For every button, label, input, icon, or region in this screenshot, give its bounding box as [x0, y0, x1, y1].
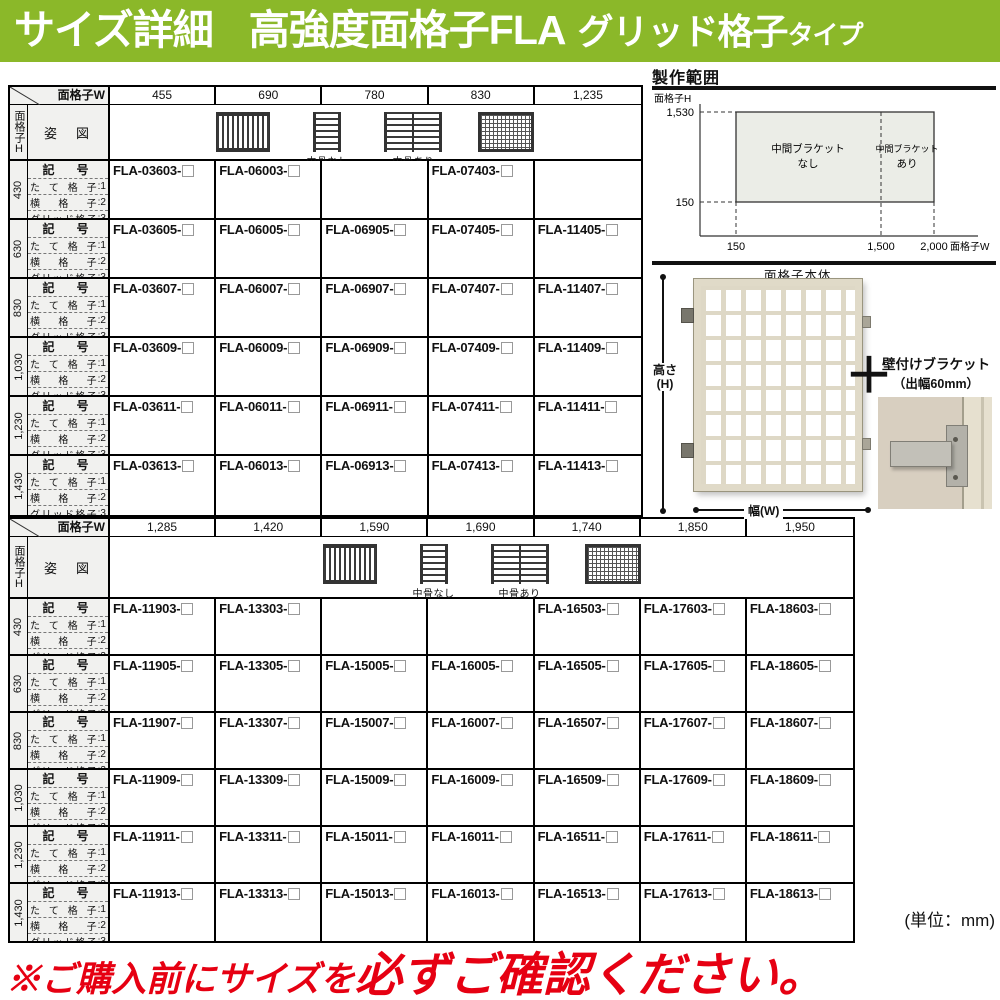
product-code: FLA-03613- — [113, 458, 181, 473]
legend-number: :3 — [98, 213, 106, 220]
row-height-cell: 830 — [10, 713, 28, 770]
fig-grid-lattice — [478, 112, 534, 152]
legend-row: 横格子:2 — [28, 917, 108, 933]
code-cell: FLA-11903- — [110, 599, 216, 656]
legend-number: :3 — [98, 449, 106, 456]
code-cell — [322, 161, 428, 220]
color-checkbox — [182, 165, 194, 177]
product-code: FLA-15009- — [325, 772, 393, 787]
legend-name: グリッド格子 — [30, 763, 97, 770]
legend-number: :1 — [98, 358, 106, 369]
code-cell: FLA-13305- — [216, 656, 322, 713]
code-cell: FLA-16503- — [535, 599, 641, 656]
banner-grid-type: グリッド格子 — [577, 11, 787, 52]
legend-number: :2 — [98, 197, 106, 208]
code-label: 記 号 — [28, 599, 108, 616]
chart-range-region — [736, 112, 934, 202]
legend-name: たて格子 — [30, 179, 97, 194]
code-cell: FLA-11905- — [110, 656, 216, 713]
color-checkbox — [500, 401, 512, 413]
color-checkbox — [606, 224, 618, 236]
code-cell: FLA-16005- — [428, 656, 534, 713]
chart-region-right-label1: 中間ブラケット — [875, 143, 938, 154]
width-axis-label: 面格子W — [58, 87, 105, 104]
color-checkbox — [818, 831, 830, 843]
product-code: FLA-17607- — [644, 715, 712, 730]
legend-row: たて格子:1 — [28, 414, 108, 430]
product-code: FLA-06011- — [219, 399, 286, 414]
legend-name: たて格子 — [30, 788, 97, 803]
height-axis-label: 面格子H — [13, 545, 24, 590]
row-label-cell: 記 号たて格子:1横格子:2グリッド格子:3 — [28, 161, 110, 220]
product-code: FLA-13307- — [219, 715, 287, 730]
code-cell: FLA-07409- — [429, 338, 535, 397]
chart-x-tick-150: 150 — [727, 241, 745, 253]
product-code: FLA-06007- — [219, 281, 287, 296]
color-checkbox — [819, 603, 831, 615]
product-code: FLA-13313- — [219, 886, 287, 901]
frame-edge-line — [981, 397, 984, 509]
product-code: FLA-11407- — [538, 281, 605, 296]
product-code: FLA-15005- — [325, 658, 393, 673]
product-code: FLA-11903- — [113, 601, 180, 616]
legend-name: グリッド格子 — [30, 388, 97, 397]
color-checkbox — [606, 342, 618, 354]
legend-number: :2 — [98, 692, 106, 703]
product-code: FLA-11905- — [113, 658, 180, 673]
legend-name: 横格子 — [30, 195, 97, 210]
legend-number: :1 — [98, 733, 106, 744]
code-cell: FLA-18609- — [747, 770, 853, 827]
legend-row: 横格子:2 — [28, 689, 108, 705]
product-code: FLA-17603- — [644, 601, 712, 616]
fig-grid-lattice-image — [585, 544, 641, 584]
width-header-cell: 830 — [429, 87, 535, 105]
color-checkbox — [181, 774, 193, 786]
legend-row: グリッド格子:3 — [28, 387, 108, 397]
width-header-cell: 1,740 — [535, 519, 641, 537]
product-code: FLA-06907- — [325, 281, 393, 296]
code-cell: FLA-03613- — [110, 456, 216, 515]
legend-number: :1 — [98, 240, 106, 251]
height-dimension-arrow — [662, 277, 664, 511]
product-code: FLA-06013- — [219, 458, 287, 473]
color-checkbox — [607, 603, 619, 615]
mount-tab-icon — [862, 316, 871, 328]
chart-region-right-label2: あり — [897, 158, 918, 170]
row-height-value: 430 — [13, 617, 25, 635]
color-checkbox — [181, 831, 193, 843]
mount-tab-icon — [681, 308, 694, 323]
fig-vertical-lattice-image — [323, 544, 377, 584]
color-checkbox — [605, 401, 617, 413]
upper-size-table: 面格子W4556907808301,235面格子H姿 図中骨なし中骨あり430記… — [8, 85, 643, 517]
legend-row: たて格子:1 — [28, 673, 108, 689]
color-checkbox — [501, 888, 513, 900]
color-checkbox — [501, 165, 513, 177]
color-checkbox — [394, 831, 406, 843]
product-code: FLA-18607- — [750, 715, 818, 730]
fig-nakabone-ari: 中骨あり — [384, 112, 442, 168]
row-height-value: 830 — [13, 298, 25, 316]
code-label: 記 号 — [28, 827, 108, 844]
product-code: FLA-16507- — [538, 715, 606, 730]
color-checkbox — [606, 460, 618, 472]
color-checkbox — [181, 888, 193, 900]
row-height-value: 1,030 — [13, 784, 25, 812]
row-label-cell: 記 号たて格子:1横格子:2グリッド格子:3 — [28, 713, 110, 770]
code-cell: FLA-06911- — [322, 397, 428, 456]
color-checkbox — [394, 283, 406, 295]
color-checkbox — [500, 831, 512, 843]
product-code: FLA-16007- — [431, 715, 499, 730]
code-label: 記 号 — [28, 220, 108, 237]
color-checkbox — [501, 283, 513, 295]
product-code: FLA-06905- — [325, 222, 393, 237]
code-cell: FLA-11413- — [535, 456, 641, 515]
color-checkbox — [713, 774, 725, 786]
code-cell: FLA-03605- — [110, 220, 216, 279]
product-code: FLA-07407- — [432, 281, 500, 296]
color-checkbox — [819, 888, 831, 900]
color-checkbox — [288, 774, 300, 786]
legend-number: :2 — [98, 749, 106, 760]
product-code: FLA-18605- — [750, 658, 818, 673]
screw-icon — [953, 437, 958, 442]
color-checkbox — [288, 224, 300, 236]
legend-name: グリッド格子 — [30, 329, 97, 338]
legend-number: :2 — [98, 256, 106, 267]
product-code: FLA-18613- — [750, 886, 818, 901]
legend-name: グリッド格子 — [30, 820, 97, 827]
fig-nakabone-ari: 中骨あり — [491, 544, 549, 600]
code-cell: FLA-17605- — [641, 656, 747, 713]
width-header-cell: 1,590 — [322, 519, 428, 537]
width-header-cell: 780 — [322, 87, 428, 105]
code-cell: FLA-16009- — [428, 770, 534, 827]
legend-name: 横格子 — [30, 313, 97, 328]
color-checkbox — [182, 224, 194, 236]
code-cell: FLA-07411- — [429, 397, 535, 456]
production-range-title: 製作範囲 — [652, 64, 996, 86]
legend-row: グリッド格子:3 — [28, 328, 108, 338]
code-cell: FLA-18611- — [747, 827, 853, 884]
legend-name: グリッド格子 — [30, 649, 97, 656]
color-checkbox — [288, 717, 300, 729]
row-height-value: 1,430 — [13, 472, 25, 500]
purchase-warning: ※ご購入前にサイズを必ずご確認ください。 — [6, 936, 825, 1000]
color-checkbox — [712, 831, 724, 843]
color-checkbox — [606, 283, 618, 295]
product-code: FLA-16505- — [538, 658, 606, 673]
product-code: FLA-07403- — [432, 163, 500, 178]
product-code: FLA-03607- — [113, 281, 181, 296]
legend-name: 横格子 — [30, 747, 97, 762]
fig-nakabone-ari-image — [384, 112, 442, 152]
row-height-cell: 1,430 — [10, 884, 28, 941]
color-checkbox — [288, 831, 300, 843]
code-label: 記 号 — [28, 770, 108, 787]
color-checkbox — [181, 401, 193, 413]
row-height-value: 1,430 — [13, 899, 25, 927]
legend-row: たて格子:1 — [28, 901, 108, 917]
fig-nakabone-nashi-label: 中骨なし — [413, 585, 455, 600]
row-height-cell: 430 — [10, 161, 28, 220]
product-code: FLA-07413- — [432, 458, 500, 473]
legend-row: 横格子:2 — [28, 430, 108, 446]
product-code: FLA-18609- — [750, 772, 818, 787]
code-cell: FLA-18605- — [747, 656, 853, 713]
banner-product-name: 高強度面格子FLA — [249, 7, 566, 53]
code-cell: FLA-17613- — [641, 884, 747, 941]
fig-nakabone-nashi-image — [420, 544, 448, 584]
appearance-label: 姿 図 — [28, 537, 110, 599]
wall-bracket-photo — [878, 397, 992, 509]
color-checkbox — [181, 603, 193, 615]
row-label-cell: 記 号たて格子:1横格子:2グリッド格子:3 — [28, 456, 110, 515]
code-cell: FLA-11411- — [535, 397, 641, 456]
code-cell: FLA-07403- — [429, 161, 535, 220]
legend-name: グリッド格子 — [30, 706, 97, 713]
width-header-cell: 1,690 — [428, 519, 534, 537]
banner-type-suffix: タイプ — [788, 20, 863, 50]
color-checkbox — [394, 401, 406, 413]
row-height-value: 1,030 — [13, 353, 25, 381]
color-checkbox — [288, 165, 300, 177]
product-code: FLA-07409- — [432, 340, 500, 355]
color-checkbox — [501, 717, 513, 729]
product-code: FLA-11907- — [113, 715, 180, 730]
code-cell — [428, 599, 534, 656]
fig-vertical-lattice — [216, 112, 270, 152]
code-cell: FLA-17607- — [641, 713, 747, 770]
code-cell: FLA-07407- — [429, 279, 535, 338]
code-cell: FLA-06909- — [322, 338, 428, 397]
legend-row: 横格子:2 — [28, 371, 108, 387]
chart-y-tick-max: 1,530 — [666, 107, 694, 119]
color-checkbox — [607, 660, 619, 672]
legend-row: 横格子:2 — [28, 860, 108, 876]
row-height-value: 630 — [13, 239, 25, 257]
legend-name: 横格子 — [30, 918, 97, 933]
code-cell: FLA-17609- — [641, 770, 747, 827]
fig-vertical-lattice-image — [216, 112, 270, 152]
legend-name: たて格子 — [30, 617, 97, 632]
product-code: FLA-16511- — [538, 829, 605, 844]
legend-row: たて格子:1 — [28, 178, 108, 194]
code-label: 記 号 — [28, 884, 108, 901]
legend-name: グリッド格子 — [30, 506, 97, 515]
right-panel: 製作範囲 面格子H 1,530 150 中間ブラケット なし 中間ブラケット あ… — [652, 64, 996, 523]
code-cell: FLA-11907- — [110, 713, 216, 770]
code-cell: FLA-16513- — [535, 884, 641, 941]
code-cell: FLA-06907- — [322, 279, 428, 338]
color-checkbox — [394, 717, 406, 729]
legend-row: グリッド格子:3 — [28, 505, 108, 515]
legend-number: :2 — [98, 920, 106, 931]
color-checkbox — [288, 460, 300, 472]
legend-name: グリッド格子 — [30, 211, 97, 220]
color-checkbox — [181, 660, 193, 672]
code-cell: FLA-18613- — [747, 884, 853, 941]
legend-name: たて格子 — [30, 297, 97, 312]
legend-number: :3 — [98, 508, 106, 515]
color-checkbox — [501, 342, 513, 354]
color-checkbox — [713, 660, 725, 672]
code-cell: FLA-18603- — [747, 599, 853, 656]
width-header-cell: 690 — [216, 87, 322, 105]
color-checkbox — [288, 660, 300, 672]
legend-name: グリッド格子 — [30, 270, 97, 279]
code-cell: FLA-16507- — [535, 713, 641, 770]
product-code: FLA-03603- — [113, 163, 181, 178]
code-cell: FLA-15009- — [322, 770, 428, 827]
product-code: FLA-17605- — [644, 658, 712, 673]
banner-size-detail: サイズ詳細 — [14, 7, 213, 53]
row-label-cell: 記 号たて格子:1横格子:2グリッド格子:3 — [28, 827, 110, 884]
row-label-cell: 記 号たて格子:1横格子:2グリッド格子:3 — [28, 656, 110, 713]
legend-row: 横格子:2 — [28, 489, 108, 505]
product-code: FLA-11909- — [113, 772, 180, 787]
width-header-cell: 1,235 — [535, 87, 641, 105]
code-cell: FLA-15005- — [322, 656, 428, 713]
fig-nakabone-ari-label: 中骨あり — [499, 585, 541, 600]
legend-number: :2 — [98, 863, 106, 874]
legend-number: :2 — [98, 492, 106, 503]
bracket-arm — [890, 441, 952, 467]
color-checkbox — [713, 888, 725, 900]
code-cell: FLA-15007- — [322, 713, 428, 770]
code-cell: FLA-16511- — [535, 827, 641, 884]
height-axis-label: 面格子H — [13, 110, 24, 155]
code-cell: FLA-11405- — [535, 220, 641, 279]
row-height-cell: 430 — [10, 599, 28, 656]
code-label: 記 号 — [28, 456, 108, 473]
row-label-cell: 記 号たて格子:1横格子:2グリッド格子:3 — [28, 770, 110, 827]
legend-name: 横格子 — [30, 431, 97, 446]
row-label-cell: 記 号たて格子:1横格子:2グリッド格子:3 — [28, 884, 110, 941]
mount-tab-icon — [681, 443, 694, 458]
fig-vertical-lattice — [323, 544, 377, 584]
code-cell: FLA-13309- — [216, 770, 322, 827]
product-code: FLA-13309- — [219, 772, 287, 787]
width-dimension-label: 幅(W) — [744, 502, 783, 519]
legend-row: グリッド格子:3 — [28, 269, 108, 279]
color-checkbox — [182, 460, 194, 472]
legend-number: :1 — [98, 299, 106, 310]
legend-name: 横格子 — [30, 690, 97, 705]
catalog-page: サイズ詳細高強度面格子FLAグリッド格子タイプ 面格子W455690780830… — [0, 0, 1000, 1000]
product-code: FLA-16009- — [431, 772, 499, 787]
legend-number: :2 — [98, 315, 106, 326]
legend-number: :1 — [98, 904, 106, 915]
color-checkbox — [182, 342, 194, 354]
product-code: FLA-07411- — [432, 399, 499, 414]
fig-grid-lattice — [585, 544, 641, 584]
product-code: FLA-03605- — [113, 222, 181, 237]
color-checkbox — [394, 774, 406, 786]
legend-row: たて格子:1 — [28, 844, 108, 860]
legend-row: たて格子:1 — [28, 473, 108, 489]
fig-nakabone-nashi-image — [313, 112, 341, 152]
product-code: FLA-17613- — [644, 886, 712, 901]
code-cell: FLA-11909- — [110, 770, 216, 827]
code-cell: FLA-06007- — [216, 279, 322, 338]
legend-name: たて格子 — [30, 902, 97, 917]
row-height-value: 1,230 — [13, 841, 25, 869]
warning-emphasis: 必ずご確認ください。 — [355, 948, 825, 1000]
legend-number: :1 — [98, 847, 106, 858]
code-cell — [322, 599, 428, 656]
code-cell: FLA-11407- — [535, 279, 641, 338]
product-code: FLA-15013- — [325, 886, 393, 901]
product-code: FLA-16503- — [538, 601, 606, 616]
product-code: FLA-16013- — [431, 886, 499, 901]
legend-name: 横格子 — [30, 254, 97, 269]
legend-row: たて格子:1 — [28, 616, 108, 632]
legend-number: :1 — [98, 790, 106, 801]
legend-name: たて格子 — [30, 238, 97, 253]
color-checkbox — [819, 717, 831, 729]
chart-x-tick-2000: 2,000 — [920, 241, 948, 253]
title-banner: サイズ詳細高強度面格子FLAグリッド格子タイプ — [0, 0, 1000, 62]
legend-name: たて格子 — [30, 474, 97, 489]
product-code: FLA-15007- — [325, 715, 393, 730]
legend-name: たて格子 — [30, 356, 97, 371]
legend-number: :2 — [98, 374, 106, 385]
legend-name: グリッド格子 — [30, 877, 97, 884]
legend-number: :1 — [98, 619, 106, 630]
legend-number: :2 — [98, 635, 106, 646]
legend-number: :3 — [98, 331, 106, 338]
legend-name: 横格子 — [30, 804, 97, 819]
product-code: FLA-06003- — [219, 163, 287, 178]
code-cell: FLA-06011- — [216, 397, 322, 456]
legend-row: グリッド格子:3 — [28, 210, 108, 220]
product-code: FLA-16011- — [431, 829, 498, 844]
chart-y-axis-label: 面格子H — [654, 92, 691, 105]
row-height-value: 830 — [13, 731, 25, 749]
code-label: 記 号 — [28, 161, 108, 178]
product-code: FLA-11411- — [538, 399, 605, 414]
color-checkbox — [607, 774, 619, 786]
product-code: FLA-06909- — [325, 340, 393, 355]
row-height-value: 630 — [13, 674, 25, 692]
color-checkbox — [394, 460, 406, 472]
code-cell: FLA-16509- — [535, 770, 641, 827]
code-cell — [535, 161, 641, 220]
legend-row: グリッド格子:3 — [28, 819, 108, 827]
legend-row: 横格子:2 — [28, 746, 108, 762]
legend-row: 横格子:2 — [28, 194, 108, 210]
mount-tab-icon — [862, 438, 871, 450]
table-corner-cell: 面格子W — [10, 87, 110, 105]
row-label-cell: 記 号たて格子:1横格子:2グリッド格子:3 — [28, 599, 110, 656]
color-checkbox — [288, 603, 300, 615]
color-checkbox — [394, 888, 406, 900]
product-code: FLA-13305- — [219, 658, 287, 673]
product-code: FLA-16005- — [431, 658, 499, 673]
height-axis-cell: 面格子H — [10, 105, 28, 161]
code-cell: FLA-06913- — [322, 456, 428, 515]
production-range-chart: 面格子H 1,530 150 中間ブラケット なし 中間ブラケット あり 150… — [652, 90, 996, 256]
product-code: FLA-16513- — [538, 886, 606, 901]
code-cell: FLA-07413- — [429, 456, 535, 515]
width-header-cell: 1,420 — [216, 519, 322, 537]
code-label: 記 号 — [28, 713, 108, 730]
product-code: FLA-18603- — [750, 601, 818, 616]
code-cell: FLA-13307- — [216, 713, 322, 770]
